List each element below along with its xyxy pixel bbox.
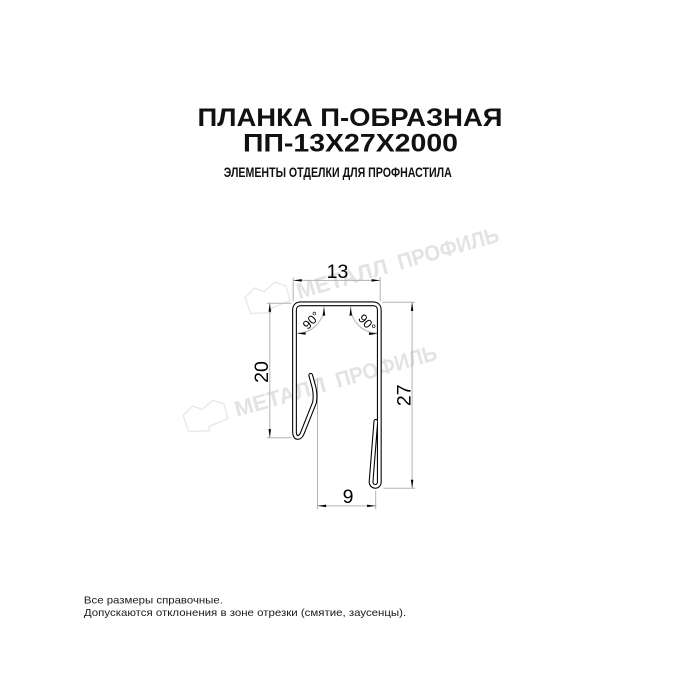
svg-text:ПП-13Х27Х2000: ПП-13Х27Х2000	[243, 130, 458, 158]
svg-text:ЭЛЕМЕНТЫ ОТДЕЛКИ ДЛЯ ПРОФНАСТИ: ЭЛЕМЕНТЫ ОТДЕЛКИ ДЛЯ ПРОФНАСТИЛА	[224, 165, 452, 180]
svg-text:9: 9	[343, 486, 354, 508]
svg-text:20: 20	[251, 361, 273, 383]
svg-text:13: 13	[327, 261, 349, 283]
svg-text:27: 27	[394, 384, 416, 406]
svg-text:Допускаются отклонения в зоне: Допускаются отклонения в зоне отрезки (с…	[84, 607, 406, 619]
svg-text:Все размеры справочные.: Все размеры справочные.	[84, 594, 223, 606]
svg-text:ПЛАНКА П-ОБРАЗНАЯ: ПЛАНКА П-ОБРАЗНАЯ	[198, 104, 503, 132]
